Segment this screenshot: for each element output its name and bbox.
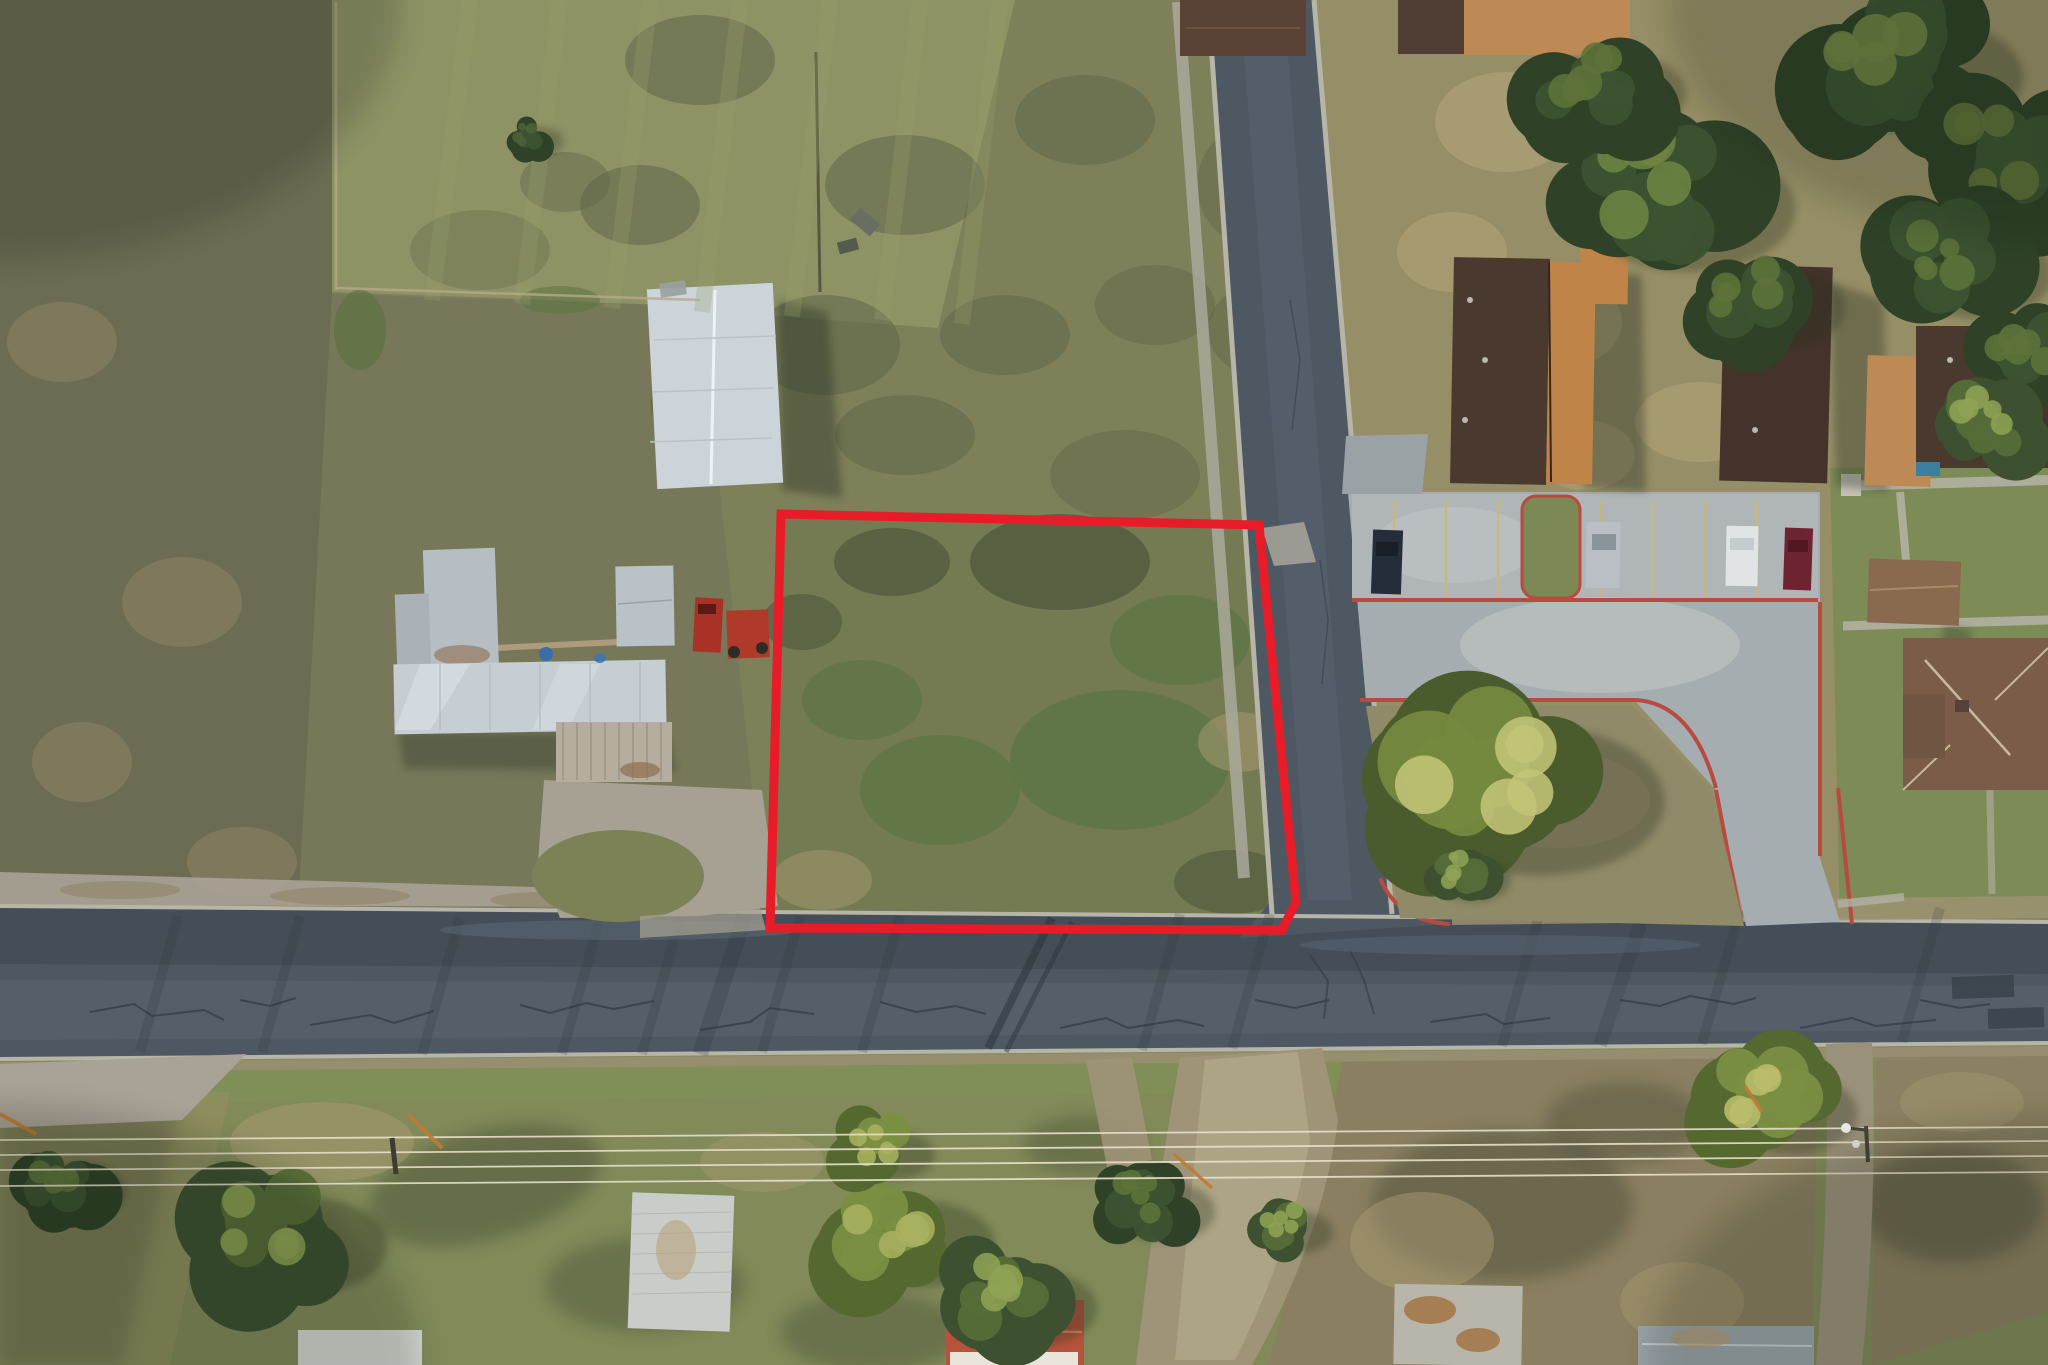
tractor-wheel xyxy=(756,642,768,654)
lot-grass-patch xyxy=(860,735,1020,845)
hedge xyxy=(520,286,600,314)
red-truck-glass xyxy=(698,604,716,614)
shed-annex xyxy=(395,593,432,670)
blue-barrel xyxy=(539,647,553,661)
car-navy xyxy=(1371,529,1403,594)
apt-vent xyxy=(1752,427,1758,433)
tree-shadow xyxy=(1545,1082,1705,1162)
lot-grass-patch xyxy=(1010,690,1230,830)
building-top-dark xyxy=(1398,0,1464,54)
woods-tan-patch xyxy=(32,722,132,802)
corr-tan-patch xyxy=(656,1220,696,1280)
blue-tarp-patio xyxy=(1916,462,1940,476)
car-white xyxy=(1725,526,1758,587)
road-sheen xyxy=(1300,935,1700,955)
scene-root xyxy=(0,0,2048,1365)
car-maroon-glass xyxy=(1788,540,1808,552)
apt-vent xyxy=(1947,357,1953,363)
parking-grass-island xyxy=(1522,496,1580,598)
hedge xyxy=(334,290,386,370)
chimney xyxy=(1955,700,1969,712)
scrub-mottle xyxy=(835,395,975,475)
lot-dry-patch xyxy=(772,850,872,910)
car-silver-suv xyxy=(1585,522,1620,589)
dry-grass xyxy=(700,1132,824,1192)
main-road-worn-band xyxy=(0,980,2048,1040)
corr-rust xyxy=(620,762,660,778)
rusty-roof-house xyxy=(1393,1284,1522,1365)
pad-grass-island xyxy=(532,830,704,922)
scrub-mottle xyxy=(1050,430,1200,520)
car-white-glass xyxy=(1730,538,1754,550)
small-brown-house xyxy=(1867,558,1961,625)
tractor-wheel xyxy=(728,646,740,658)
aerial-photo-screenshot xyxy=(0,0,2048,1365)
lot-shadow-patch xyxy=(970,514,1150,610)
apt-vent xyxy=(1462,417,1468,423)
lot-grass-patch xyxy=(802,660,922,740)
shoulder-dirt xyxy=(270,887,410,905)
hip-house-wing xyxy=(1903,694,1945,758)
blue-tarp xyxy=(594,653,606,663)
car-maroon xyxy=(1783,528,1813,591)
lot-entrance-apron xyxy=(1342,434,1428,494)
dry-grass xyxy=(1350,1192,1494,1292)
street-lamp-bulb xyxy=(1841,1123,1851,1133)
lot-shadow-patch xyxy=(834,528,950,596)
woods-tan-patch xyxy=(122,557,242,647)
asphalt-patch xyxy=(1988,1007,2045,1029)
rust-patch xyxy=(1404,1296,1456,1324)
rust-patch xyxy=(1456,1328,1500,1352)
shed-gray-b xyxy=(615,566,674,647)
shed-rust xyxy=(434,645,490,665)
asphalt-patch xyxy=(1952,975,2015,999)
apartment-a-dark xyxy=(1450,257,1550,485)
car-silver-glass xyxy=(1592,534,1616,550)
shoulder-dirt xyxy=(60,881,180,899)
apt-vent xyxy=(1482,357,1488,363)
car-navy-glass xyxy=(1376,542,1398,556)
woods-tan-patch xyxy=(7,302,117,382)
scrub-mottle xyxy=(1015,75,1155,165)
aerial-photo-view xyxy=(0,0,2048,1365)
apt-vent xyxy=(1467,297,1473,303)
